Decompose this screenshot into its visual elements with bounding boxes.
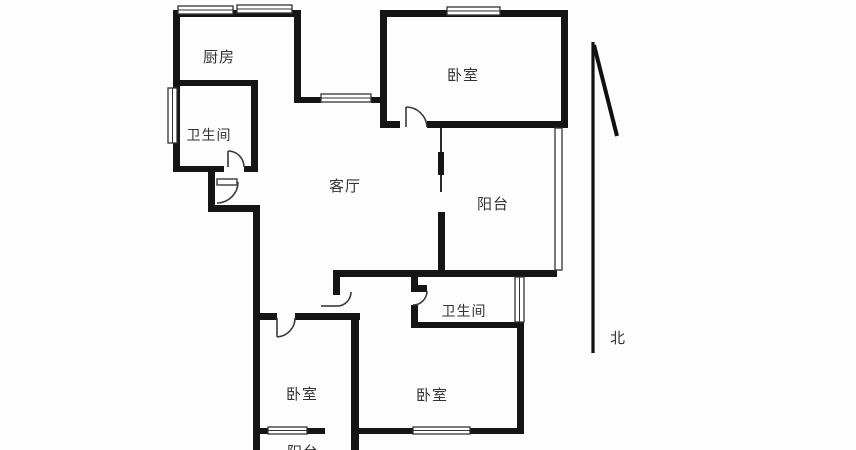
walls — [173, 10, 568, 450]
door-bath2 — [413, 291, 427, 305]
wall-bath1-bottom-right — [244, 166, 258, 172]
window-kitchen-1 — [178, 6, 233, 14]
window-bath1 — [168, 88, 177, 143]
wall-bedroom-ne-right — [561, 10, 568, 128]
room-label-kitchen: 厨房 — [203, 49, 235, 66]
window-bedroom-sw — [268, 427, 307, 434]
compass-north-label: 北 — [610, 330, 626, 347]
wall-west — [253, 205, 260, 450]
wall-kitchen-right — [294, 10, 301, 103]
room-label-bathroom-south: 卫生间 — [442, 303, 487, 319]
room-label-bedroom-northeast: 卧室 — [447, 67, 479, 84]
wall-bedroom-s-west — [351, 313, 359, 450]
wall-bedroom-ne-left — [380, 10, 387, 128]
north-arrow-barb — [594, 45, 617, 136]
wall-balcony-e-lower — [438, 212, 445, 270]
wall-bath2-bottom — [411, 322, 520, 328]
wall-bedroom-sw-top-right — [295, 313, 360, 320]
window-bedroom-s — [413, 427, 470, 434]
door-bedroom-ne — [406, 107, 427, 127]
wall-bedroom-sw-bottom-right — [307, 428, 325, 434]
wall-bath1-top — [173, 80, 258, 86]
wall-bath1-bottom-left — [173, 166, 224, 172]
wall-kitchen-left — [173, 10, 180, 86]
wall-bedroom-sw-top-left — [253, 313, 277, 320]
door-bedroom-sw — [277, 318, 295, 337]
doors — [217, 107, 427, 337]
wall-balcony-e-pier — [438, 152, 444, 175]
wall-living-south — [333, 270, 557, 277]
window-bath2-east — [515, 277, 524, 322]
door-hallway — [217, 179, 238, 203]
wall-stub-bath2 — [411, 270, 418, 292]
wall-bedroom-s-right — [517, 322, 524, 434]
door-bath1 — [228, 151, 244, 167]
wall-bedroom-s-bottom-right — [470, 428, 520, 434]
room-label-bathroom-north: 卫生间 — [187, 127, 232, 143]
room-label-balcony-south: 阳台 — [287, 444, 319, 450]
wall-bedroom-sw-bottom-left — [260, 428, 268, 434]
floor-plan-drawing: 厨房 卫生间 卧室 客厅 阳台 卫生间 卧室 卧室 阳台 北 — [0, 0, 856, 450]
wall-hall-jog — [208, 205, 260, 212]
floor-plan-page: 厨房 卫生间 卧室 客厅 阳台 卫生间 卧室 卧室 阳台 北 — [0, 0, 856, 450]
north-arrow — [593, 42, 617, 353]
wall-bath1-right — [251, 80, 258, 172]
room-label-balcony-east: 阳台 — [477, 196, 509, 213]
wall-bedroom-ne-bottom-right — [427, 121, 568, 128]
window-living-north — [321, 94, 371, 102]
wall-stub-bath2-foot — [418, 285, 427, 292]
room-label-bedroom-southwest: 卧室 — [286, 386, 318, 403]
window-balcony-e-glazing — [555, 128, 562, 270]
room-label-living-room: 客厅 — [329, 178, 361, 195]
room-label-bedroom-south: 卧室 — [416, 387, 448, 404]
window-bedroom-ne — [447, 7, 500, 15]
wall-stub-corridor — [333, 270, 340, 295]
wall-south-of-kitchen-left — [294, 97, 321, 103]
wall-bedroom-ne-bottom-left — [380, 121, 400, 128]
window-kitchen-2 — [237, 5, 292, 13]
windows — [168, 5, 562, 434]
wall-bedroom-s-bottom-left — [359, 428, 413, 434]
